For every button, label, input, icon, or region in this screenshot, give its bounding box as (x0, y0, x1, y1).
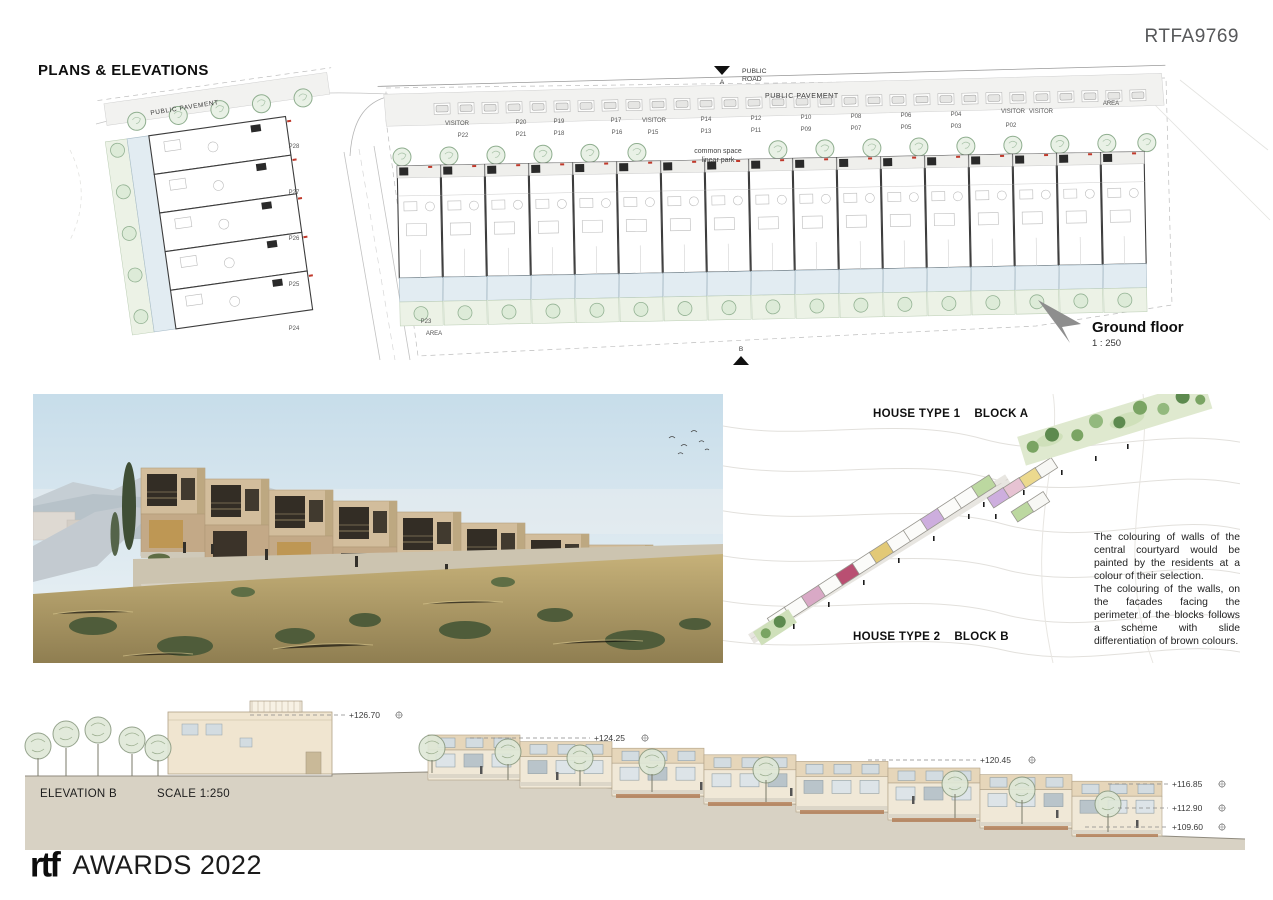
parking-label: P19 (554, 119, 565, 125)
linear-park (1017, 394, 1212, 466)
level-label: +116.85 (1172, 779, 1203, 789)
project-code: RTFA9769 (1145, 26, 1239, 48)
parking-label: P28 (289, 144, 300, 150)
parking-label: P08 (851, 114, 862, 120)
colour-note-paragraph: The colouring of walls of the central co… (1094, 531, 1240, 583)
parking-label: VISITOR (1029, 109, 1054, 115)
parking-label: AREA (426, 331, 442, 337)
parking-label: AREA (1103, 101, 1119, 107)
plan-caption-scale: 1 : 250 (1092, 338, 1121, 349)
rtf-logo: rtf (30, 845, 58, 886)
parking-label: VISITOR (642, 118, 667, 124)
parking-label: P14 (701, 117, 712, 123)
parking-label: P18 (554, 131, 565, 137)
long-block (378, 65, 1171, 326)
house-type-2-text: HOUSE TYPE 2 (853, 631, 940, 643)
elevation-scale: SCALE 1:250 (157, 788, 230, 800)
parking-label: VISITOR (1001, 109, 1026, 115)
elevation-b-drawing: +126.70 +124.25 +120.45 +116.85 +112.90 … (0, 688, 1273, 853)
house-type-2-label: HOUSE TYPE 2BLOCK B (853, 631, 1009, 643)
housing-units (397, 152, 1147, 326)
common-space-label: common space (694, 148, 742, 155)
common-space-label: linear park (702, 157, 735, 164)
axonometric-diagram: HOUSE TYPE 1BLOCK A HOUSE TYPE 2BLOCK B … (723, 394, 1240, 663)
parking-label: P22 (458, 133, 469, 139)
parking-label: P16 (612, 130, 623, 136)
section-marker-b: B (739, 346, 743, 353)
colour-note-paragraph: The colouring of the walls, on the facad… (1094, 583, 1240, 648)
parking-label: VISITOR (445, 121, 470, 127)
parking-label: P13 (701, 129, 712, 135)
parking-label: P24 (289, 326, 300, 332)
left-block (97, 68, 364, 336)
footer: rtf AWARDS 2022 (30, 846, 262, 885)
ground-floor-plan: PUBLIC ROAD A PUBLIC PAVEMENT PUBLIC PAV… (0, 60, 1273, 380)
exterior-render (33, 394, 723, 663)
elevation-tall-building (168, 701, 332, 774)
parking-label: P06 (901, 113, 912, 119)
parking-label: P05 (901, 125, 912, 131)
parking-label: P11 (751, 128, 762, 134)
public-road-label: ROAD (742, 76, 762, 83)
section-marker-a-icon (714, 66, 730, 75)
awards-title: AWARDS 2022 (72, 850, 262, 881)
axon-people (793, 444, 1129, 629)
level-label: +112.90 (1172, 803, 1203, 813)
parking-label: P09 (801, 127, 812, 133)
section-marker-a: A (720, 79, 725, 86)
parking-label: P04 (951, 112, 962, 118)
house-type-1-text: HOUSE TYPE 1 (873, 408, 960, 420)
parking-label: P15 (648, 130, 659, 136)
colour-note: The colouring of walls of the central co… (1094, 531, 1240, 648)
elevation-caption: ELEVATION BSCALE 1:250 (40, 788, 230, 800)
pavement-top-label: PUBLIC PAVEMENT (765, 93, 839, 100)
parking-label: P21 (516, 132, 527, 138)
parking-label: P12 (751, 116, 762, 122)
level-label: +109.60 (1172, 822, 1203, 832)
parking-label: P10 (801, 115, 812, 121)
presentation-board: RTFA9769 PLANS & ELEVATIONS (0, 0, 1273, 900)
level-label: +120.45 (980, 755, 1011, 765)
level-label: +124.25 (594, 733, 625, 743)
parking-label: P23 (421, 319, 432, 325)
parking-label: P25 (289, 282, 300, 288)
public-road-label: PUBLIC (742, 68, 767, 75)
parking-label: P07 (851, 126, 862, 132)
house-type-1-label: HOUSE TYPE 1BLOCK A (873, 408, 1028, 420)
section-marker-b-icon (733, 356, 749, 365)
parking-label: P17 (611, 118, 622, 124)
level-label: +126.70 (349, 710, 380, 720)
render-drawing (33, 394, 723, 663)
elevation-name: ELEVATION B (40, 788, 117, 800)
block-b-text: BLOCK B (954, 631, 1009, 643)
parking-label: P27 (289, 190, 300, 196)
parking-label: P02 (1006, 123, 1017, 129)
parking-label: P26 (289, 236, 300, 242)
block-a-text: BLOCK A (974, 408, 1028, 420)
parking-label: P20 (516, 120, 527, 126)
plan-caption-title: Ground floor (1092, 319, 1184, 336)
parking-label: P03 (951, 124, 962, 130)
